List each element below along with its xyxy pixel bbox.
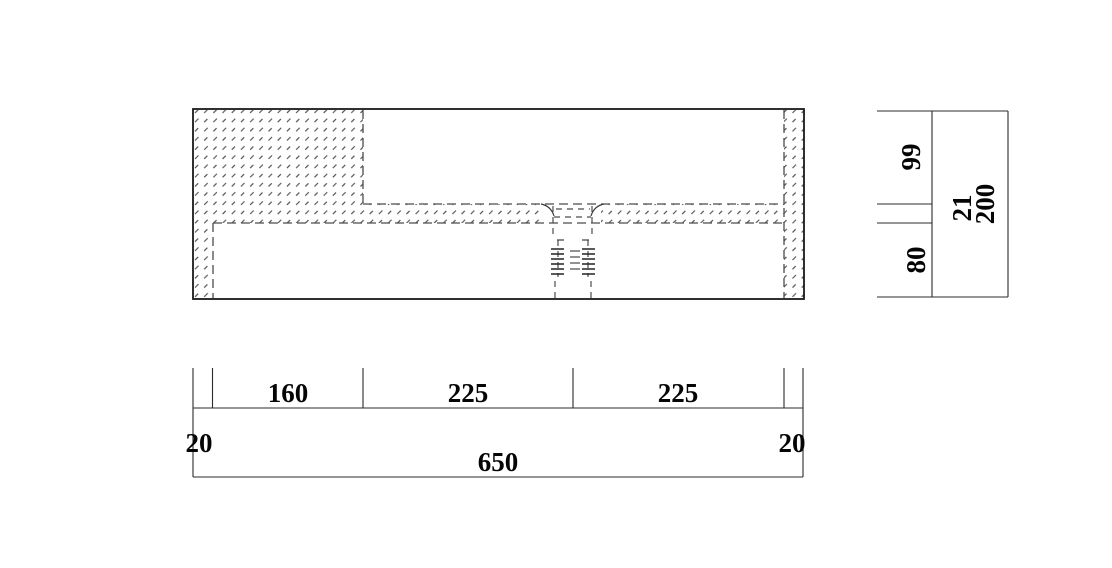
hatch-right-strip: [784, 110, 804, 299]
dim-label-total-width: 650: [478, 447, 519, 477]
dim-label-lower-height: 80: [901, 247, 931, 274]
drawing-canvas: 99 80 21 200 20 160 225 225 20 650: [0, 0, 1112, 568]
section-view: [193, 109, 804, 299]
hatch-top-left-block: [194, 110, 363, 223]
drain-assembly: [541, 204, 604, 298]
cad-drawing: 99 80 21 200 20 160 225 225 20 650: [0, 0, 1112, 568]
dim-label-total-height: 200: [970, 184, 1000, 225]
height-dimension-chain: 99 80 21 200: [877, 111, 1008, 297]
hatch-slab-band-right: [601, 204, 784, 223]
dim-label-segment-2: 225: [448, 378, 489, 408]
dim-label-segment-3: 225: [658, 378, 699, 408]
hatch-left-strip: [194, 223, 213, 299]
thread-marks-middle: [570, 251, 580, 269]
dim-label-left-edge: 20: [186, 428, 213, 458]
hatch-slab-band-left: [363, 204, 543, 223]
dim-label-right-edge: 20: [779, 428, 806, 458]
dim-label-upper-height: 99: [896, 144, 926, 171]
hatched-regions: [194, 110, 804, 299]
dim-label-segment-1: 160: [268, 378, 309, 408]
width-dimension-chain: 20 160 225 225 20 650: [186, 368, 806, 477]
